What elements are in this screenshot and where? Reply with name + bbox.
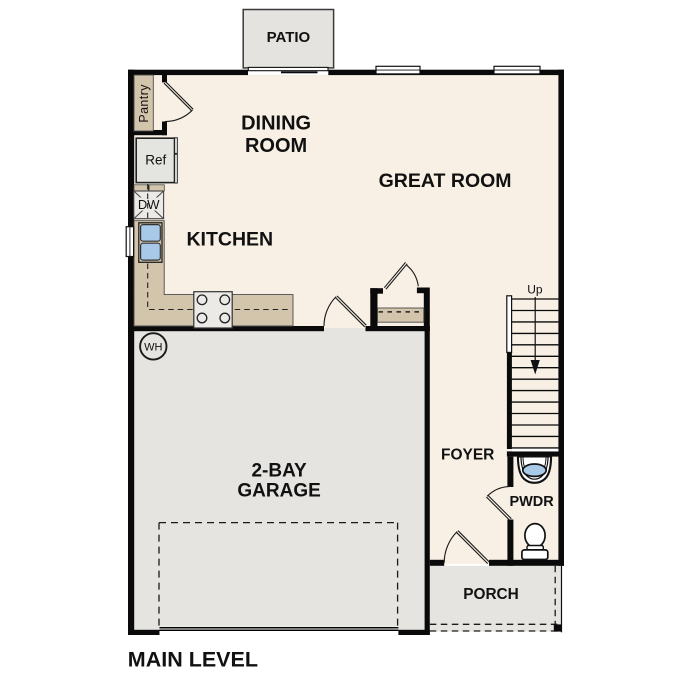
svg-text:FOYER: FOYER: [441, 446, 494, 463]
svg-text:Ref: Ref: [145, 153, 166, 168]
svg-text:MAIN LEVEL: MAIN LEVEL: [128, 648, 258, 672]
svg-text:2-BAY: 2-BAY: [251, 460, 307, 481]
svg-text:GARAGE: GARAGE: [237, 480, 320, 501]
svg-text:PATIO: PATIO: [267, 29, 311, 46]
svg-text:WH: WH: [144, 342, 162, 354]
svg-text:DINING: DINING: [241, 112, 311, 134]
svg-text:PORCH: PORCH: [463, 586, 519, 603]
svg-text:Pantry: Pantry: [137, 84, 151, 123]
svg-text:KITCHEN: KITCHEN: [186, 229, 273, 251]
svg-text:Up: Up: [527, 283, 543, 297]
svg-text:ROOM: ROOM: [245, 135, 307, 157]
svg-text:PWDR: PWDR: [509, 494, 554, 510]
svg-text:DW: DW: [138, 197, 160, 212]
svg-text:GREAT ROOM: GREAT ROOM: [379, 170, 512, 192]
